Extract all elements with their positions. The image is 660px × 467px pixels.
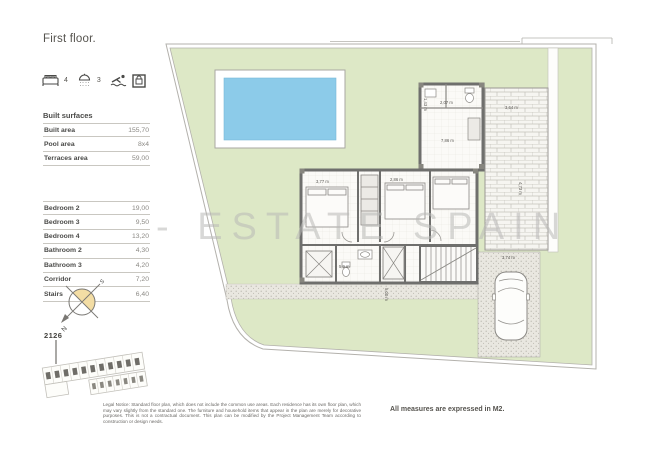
table-row: Bathroom 34,20 (43, 259, 150, 273)
dimension-label: 4,73 m (518, 182, 523, 195)
measures-note: All measures are expressed in M2. (390, 406, 504, 413)
surfaces-title: Built surfaces (43, 111, 93, 120)
garden-path (226, 284, 478, 299)
shaft-box (306, 251, 332, 277)
shaft-box (383, 247, 404, 279)
floor-plan-drawing: 3,77 m 2,86 m 3,64 m 4,73 m 3,74 m 2,07 … (150, 26, 650, 382)
shower-icon (77, 73, 92, 88)
dimension-label: 3,74 m (502, 255, 515, 260)
table-row: Bedroom 219,00 (43, 201, 150, 215)
staircase (420, 246, 477, 282)
legal-notice: Legal Notice: Standard floor plan, which… (103, 402, 361, 425)
dimension-label: 7,86 m (441, 138, 454, 143)
table-row: Pool area8x4 (43, 137, 150, 151)
bedrooms-count: 4 (64, 77, 68, 84)
dimension-label: 3,77 m (316, 179, 329, 184)
dimension-label: 2,07 m (440, 100, 453, 105)
safe-icon (132, 74, 146, 88)
compass-rose: N S (52, 276, 118, 338)
table-row: Bedroom 413,20 (43, 230, 150, 244)
dimension-label: 1,43 m (423, 98, 428, 111)
dimension-label: 5,9 m (339, 264, 350, 269)
watermark: - ESTATE SPAIN (156, 206, 656, 249)
pool-icon (110, 74, 127, 88)
swimming-pool (215, 70, 345, 148)
table-row: Terraces area59,00 (43, 152, 150, 166)
table-row: Built area155,70 (43, 123, 150, 137)
house-upper-block (419, 83, 485, 171)
bed-icon (42, 74, 59, 87)
floor-plan-page: First floor. 4 3 Built surfaces Built ar… (0, 0, 660, 467)
bathrooms-count: 3 (97, 77, 101, 84)
dimension-label: 3,64 m (505, 105, 518, 110)
dimension-label: 2,86 m (390, 177, 403, 182)
bed-bedroom-4 (433, 177, 469, 209)
site-plan (36, 338, 156, 406)
table-row: Bathroom 24,30 (43, 244, 150, 258)
car (493, 272, 530, 340)
amenities-row: 4 3 (42, 73, 146, 88)
page-title: First floor. (43, 33, 96, 45)
neighbor-boundary-lines (330, 38, 612, 44)
surfaces-main-table: Built area155,70 Pool area8x4 Terraces a… (43, 123, 150, 166)
dimension-label: 5,00 m (384, 288, 389, 301)
table-row: Bedroom 39,50 (43, 215, 150, 229)
